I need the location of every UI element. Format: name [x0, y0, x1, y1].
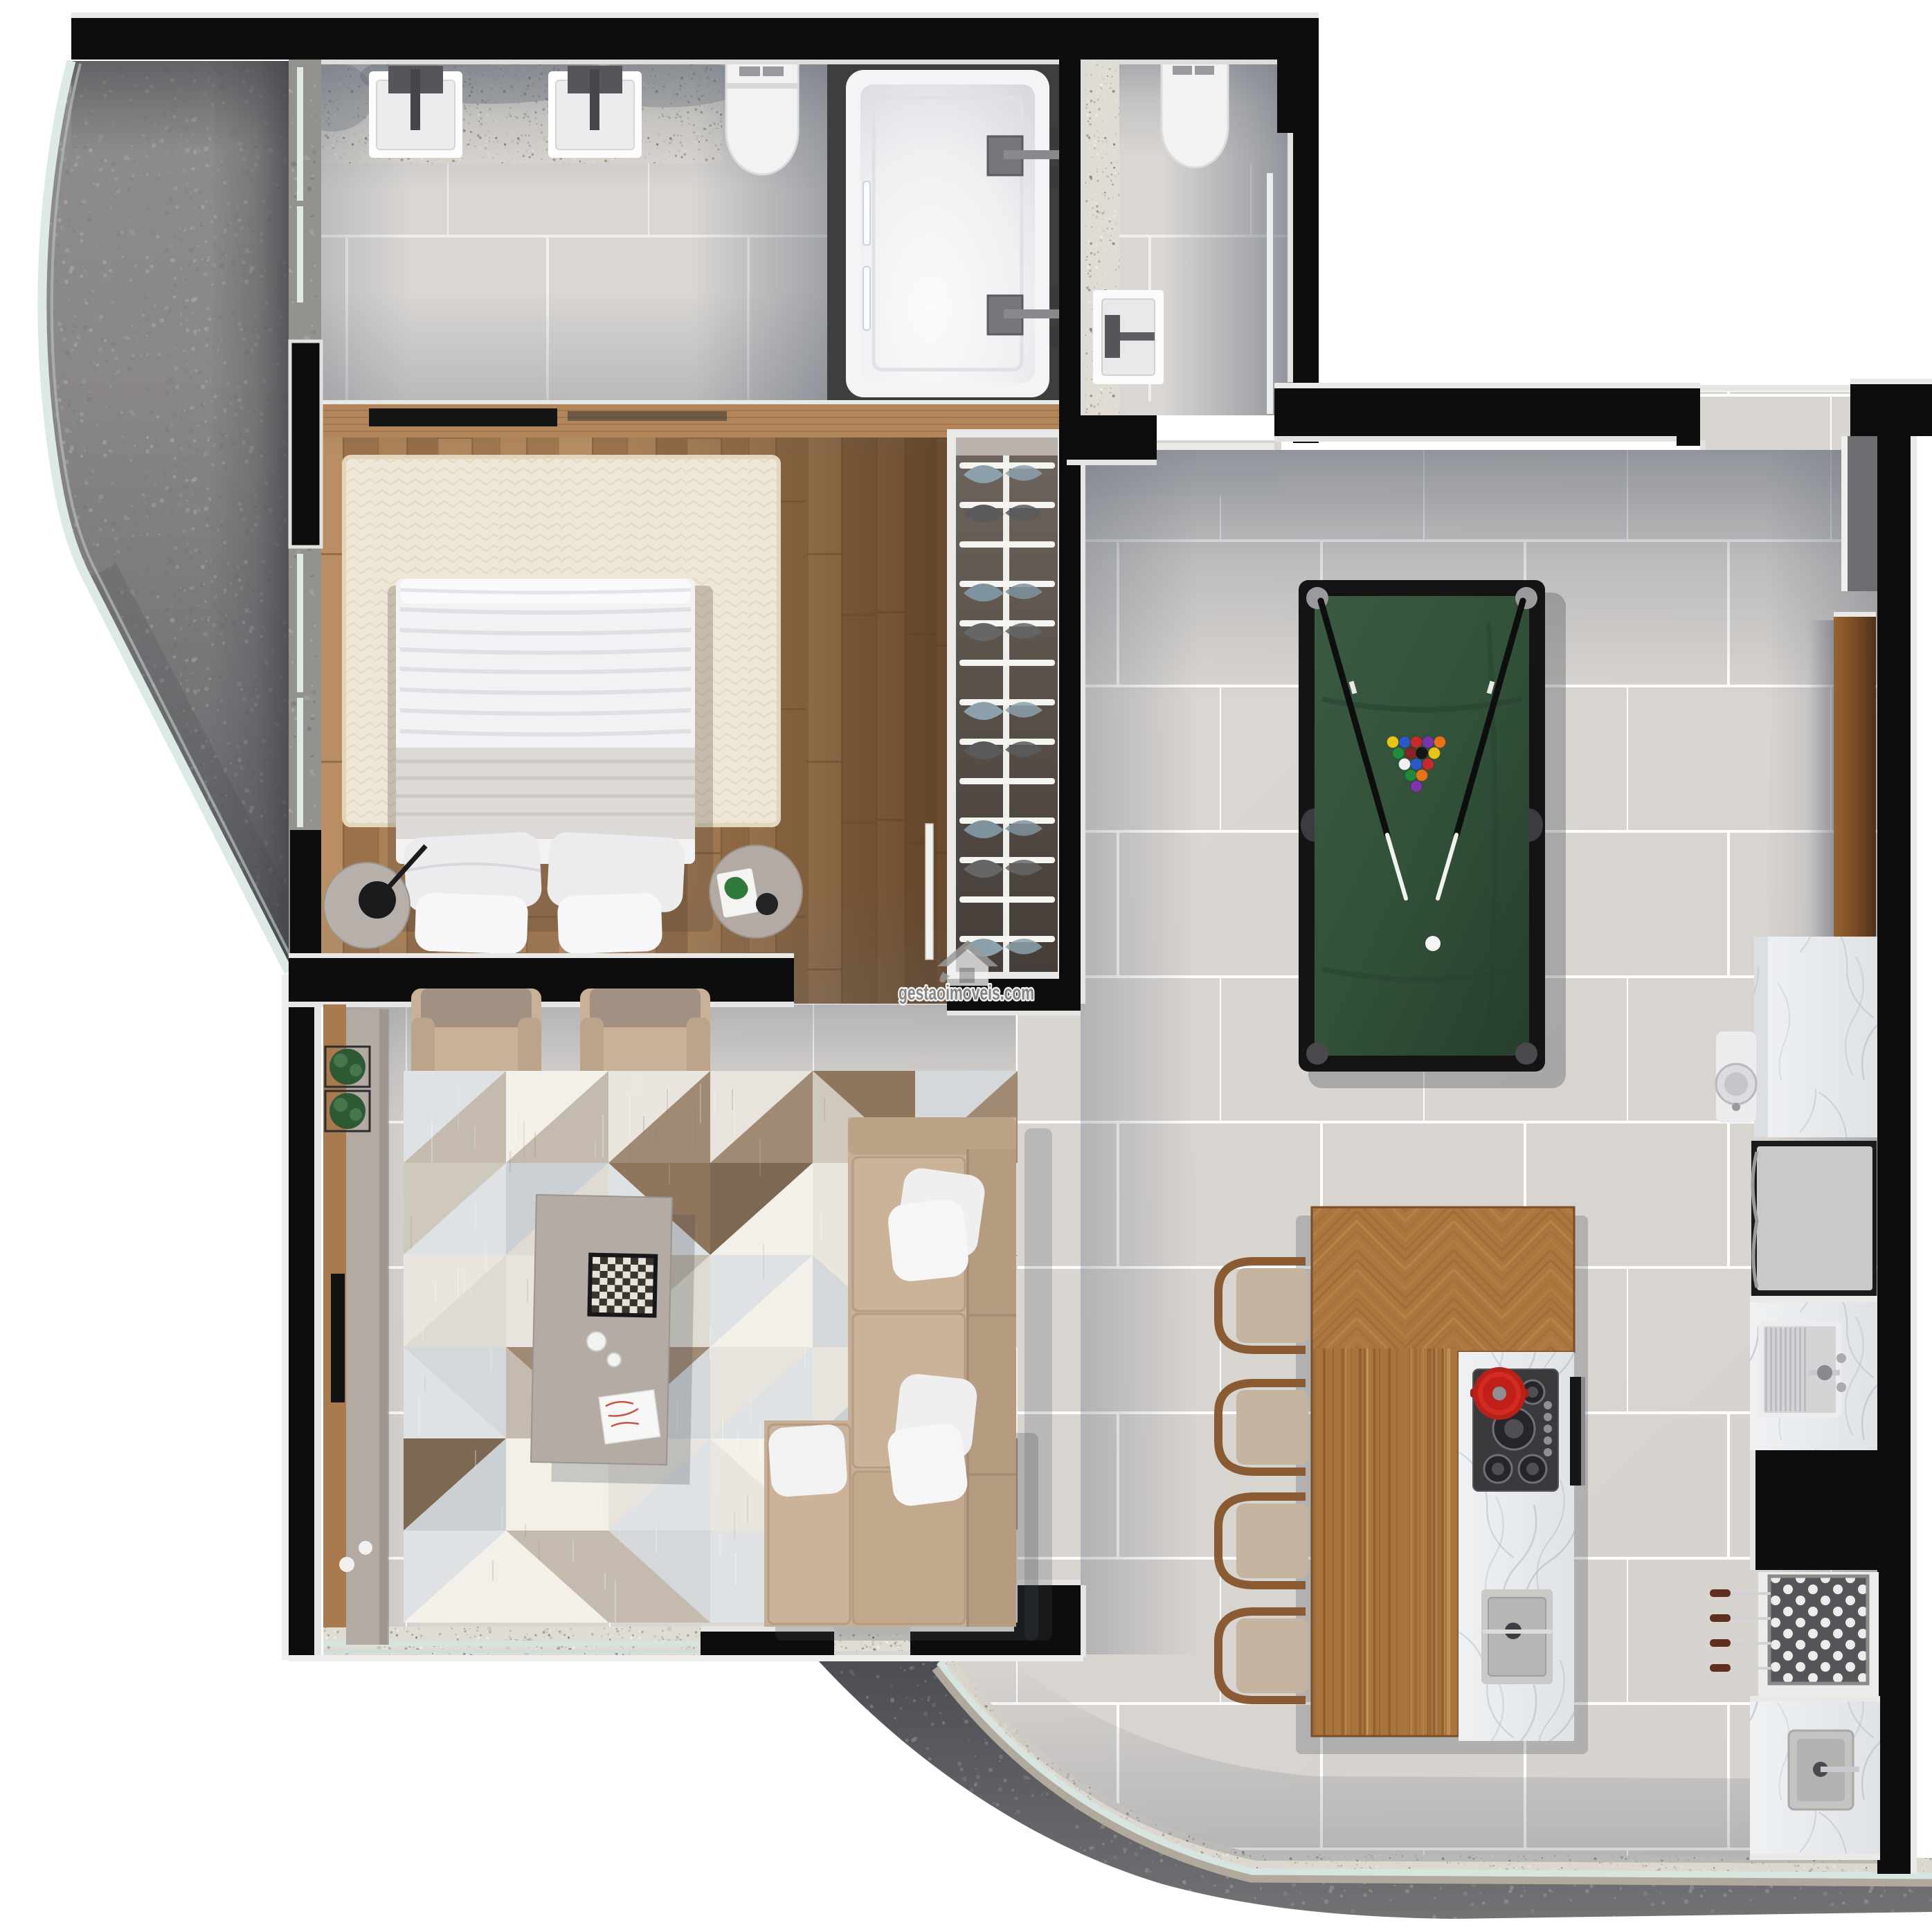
- svg-text:gestaoimoveis.com: gestaoimoveis.com: [899, 982, 1034, 1004]
